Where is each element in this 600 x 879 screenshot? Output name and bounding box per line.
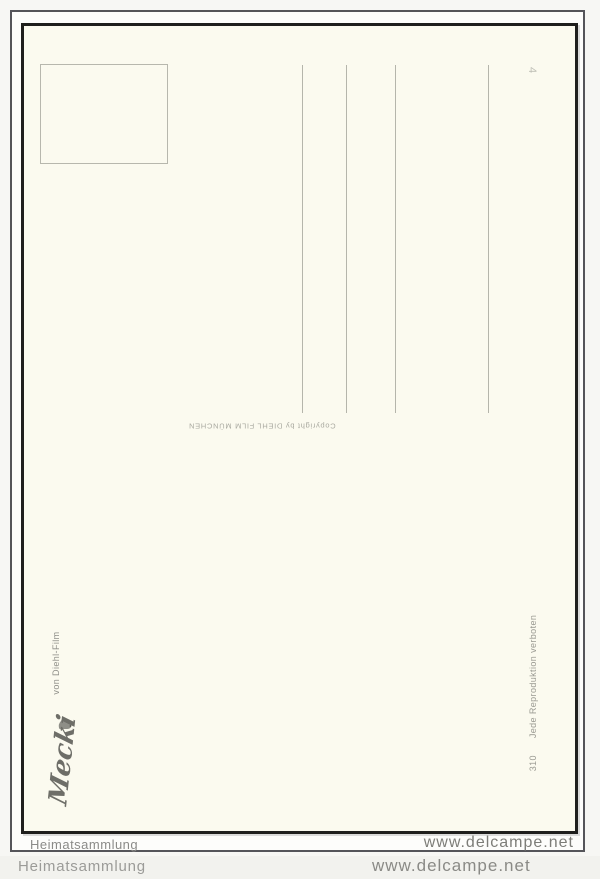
card-number: 310 [528,755,538,771]
delcampe-watermark: www.delcampe.net [372,856,531,876]
address-line [346,65,347,413]
collection-watermark: Heimatsammlung [30,837,138,852]
stamp-box [40,64,168,164]
delcampe-watermark: www.delcampe.net [424,834,574,852]
series-mark: 4 [526,67,538,73]
watermark-row-inner: Heimatsammlung www.delcampe.net [22,834,578,854]
address-line [395,65,396,413]
auction-scan-page: Copyright by DIEHL FILM MÜNCHEN von Dieh… [0,0,600,879]
publisher-credit: von Diehl-Film [51,631,61,694]
address-line [302,65,303,413]
collection-watermark: Heimatsammlung [18,858,146,875]
watermark-row-outer: Heimatsammlung www.delcampe.net [0,856,600,879]
reproduction-notice: 310 Jede Reproduktion verboten [528,615,538,772]
copyright-notice: Copyright by DIEHL FILM MÜNCHEN [188,422,335,431]
reproduction-notice-text: Jede Reproduktion verboten [528,615,538,738]
address-line [488,65,489,413]
